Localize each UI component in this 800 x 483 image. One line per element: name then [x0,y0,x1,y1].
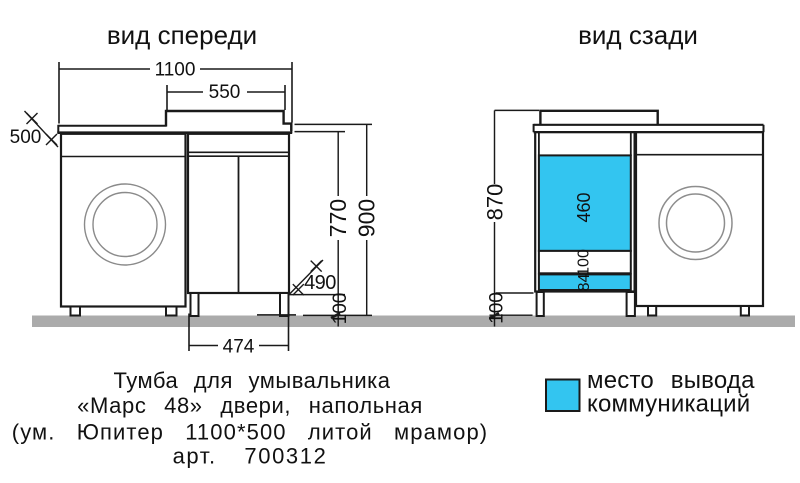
svg-text:490: 490 [304,272,336,294]
svg-text:Тумба для умывальника: Тумба для умывальника [114,368,391,393]
svg-text:100: 100 [330,293,351,325]
svg-text:870: 870 [483,184,508,221]
svg-text:«Марс 48» двери, напольная: «Марс 48» двери, напольная [77,393,423,418]
svg-text:коммуникаций: коммуникаций [587,391,750,418]
svg-text:500: 500 [10,127,42,148]
svg-text:вид спереди: вид спереди [107,20,257,50]
svg-text:(ум. Юпитер 1100*500 литой мра: (ум. Юпитер 1100*500 литой мрамор) [12,420,488,445]
svg-text:100: 100 [487,292,508,324]
svg-text:арт. 700312: арт. 700312 [173,444,328,469]
svg-text:460: 460 [574,192,594,222]
svg-text:100: 100 [576,249,593,276]
svg-text:550: 550 [209,82,241,103]
svg-text:474: 474 [223,337,255,358]
svg-text:84: 84 [576,274,593,292]
svg-text:вид сзади: вид сзади [578,20,698,50]
svg-text:900: 900 [354,199,380,237]
svg-text:770: 770 [325,199,351,237]
svg-text:1100: 1100 [155,60,196,81]
